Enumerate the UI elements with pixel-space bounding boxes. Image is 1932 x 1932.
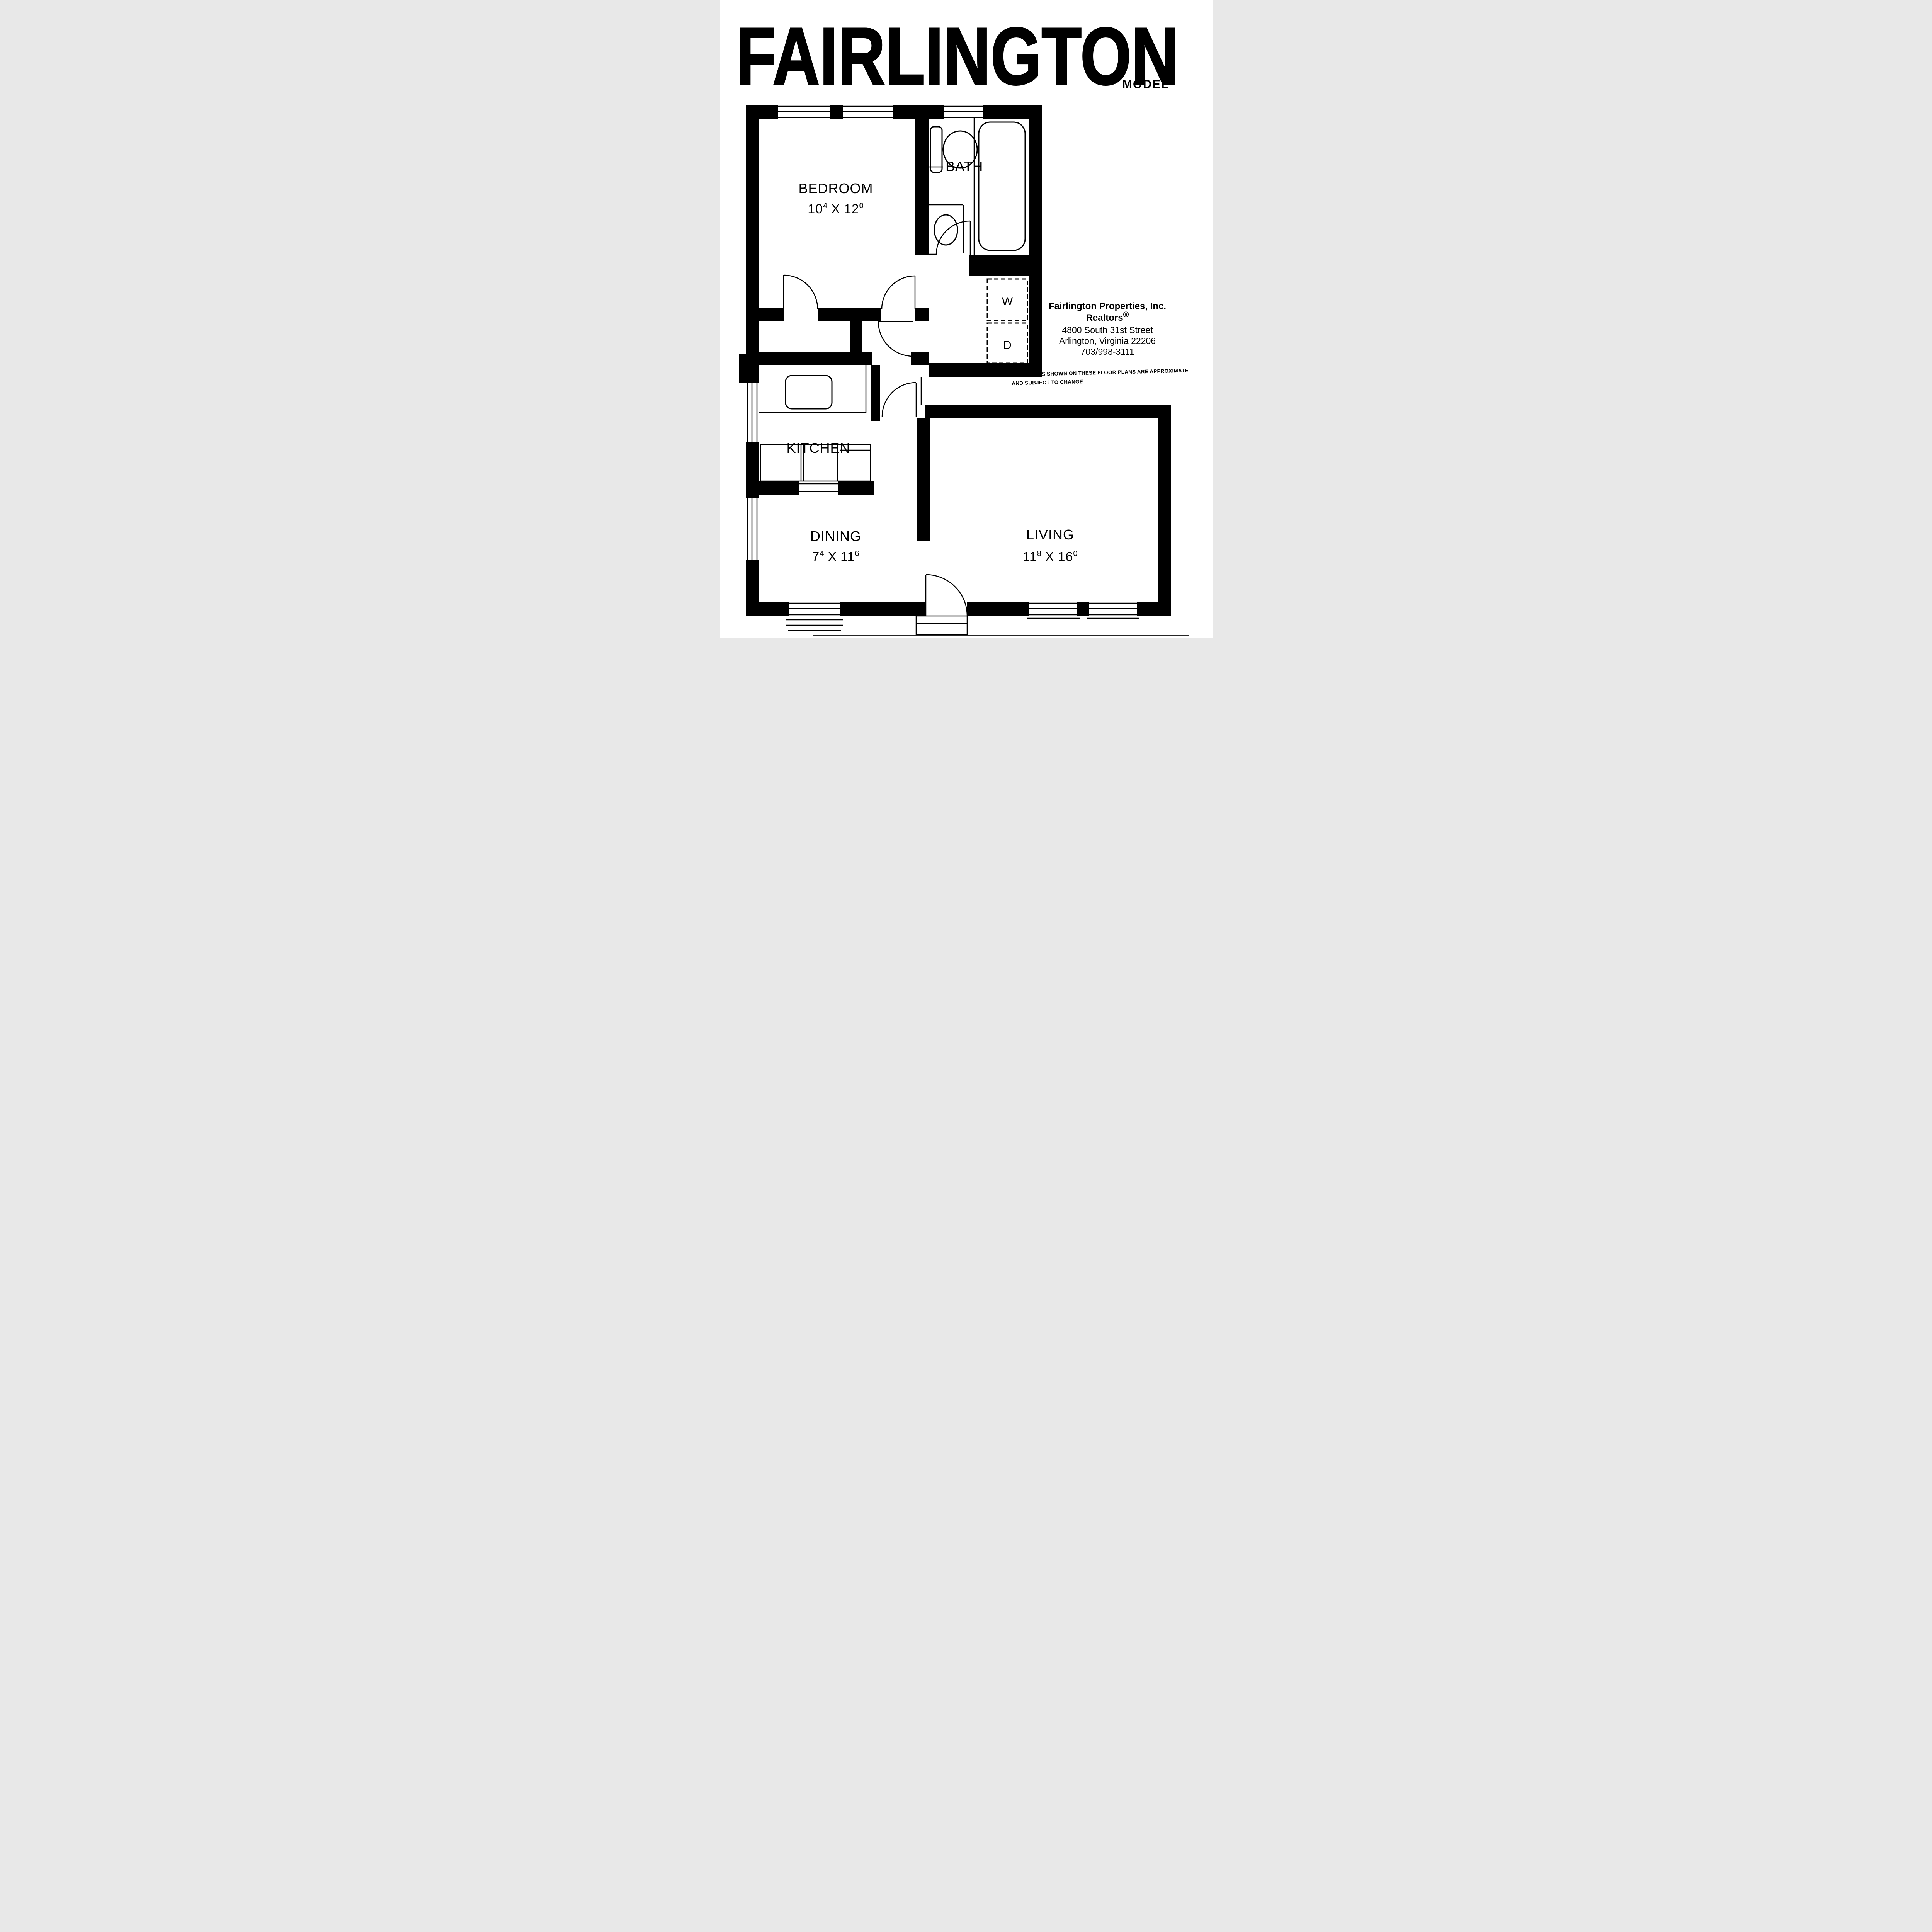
wall-segment xyxy=(915,118,929,255)
room-label-bedroom: BEDROOM xyxy=(798,180,873,196)
scan-artifact-line xyxy=(813,635,1189,636)
entry-stoop xyxy=(916,616,967,634)
page-title: FAIRLINGTON xyxy=(736,11,1179,102)
wall-segment xyxy=(1158,405,1171,616)
wall-segment xyxy=(830,105,843,119)
wall-segment xyxy=(1137,602,1171,616)
wall-segment xyxy=(746,352,872,365)
realtor-phone: 703/998-3111 xyxy=(1080,347,1134,357)
wall-segment xyxy=(746,481,799,495)
realtor-name: Fairlington Properties, Inc. xyxy=(1048,301,1166,311)
page: FAIRLINGTON MODEL xyxy=(720,0,1213,638)
bathroom-sink xyxy=(934,215,957,245)
wall-segment xyxy=(911,352,929,365)
wall-segment xyxy=(1029,105,1042,377)
page-subtitle: MODEL xyxy=(1122,77,1169,91)
wall-segment xyxy=(925,405,1171,418)
dryer-label: D xyxy=(1003,339,1012,352)
wall-segment xyxy=(759,308,784,321)
room-label-living: LIVING xyxy=(1026,527,1074,543)
wall-segment xyxy=(840,602,925,616)
room-label-kitchen: KITCHEN xyxy=(786,440,850,456)
bathtub xyxy=(979,122,1025,250)
wall-segment xyxy=(915,308,929,321)
realtor-address-line1: 4800 South 31st Street xyxy=(1062,325,1153,335)
toilet-tank xyxy=(930,127,942,172)
wall-segment xyxy=(838,481,874,495)
wall-segment xyxy=(969,255,1029,276)
wall-segment xyxy=(917,418,930,541)
dining-dimensions: 74X116 xyxy=(812,549,859,564)
kitchen-sink xyxy=(786,376,832,409)
wall-segment xyxy=(1077,602,1089,616)
living-dimensions: 118X160 xyxy=(1022,549,1078,564)
realtor-address-line2: Arlington, Virginia 22206 xyxy=(1059,336,1155,346)
wall-segment xyxy=(746,602,789,616)
wall-segment xyxy=(746,105,759,373)
room-label-dining: DINING xyxy=(810,528,861,544)
floor-plan-svg: FAIRLINGTON MODEL xyxy=(720,0,1213,638)
wall-segment xyxy=(967,602,1029,616)
wall-segment xyxy=(818,308,881,321)
wall-segment xyxy=(893,105,944,119)
room-label-bath: BATH xyxy=(946,158,983,174)
realtor-tagline: Realtors® xyxy=(1086,311,1129,323)
bedroom-dimensions: 104X120 xyxy=(808,202,864,216)
wall-segment xyxy=(871,365,880,421)
washer-label: W xyxy=(1002,295,1013,308)
closet-divider xyxy=(850,321,862,352)
